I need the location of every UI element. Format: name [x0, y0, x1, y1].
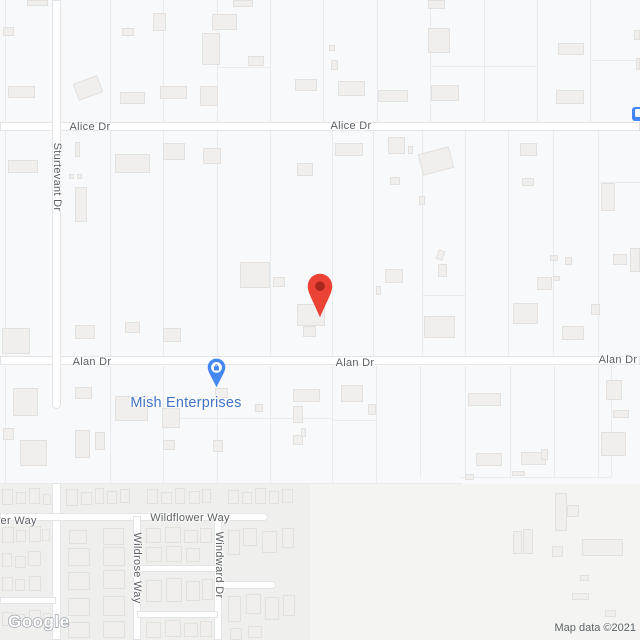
building [29, 526, 41, 542]
building [248, 56, 264, 66]
building [29, 576, 41, 591]
building [103, 547, 125, 566]
parcel-line [430, 66, 537, 67]
building [513, 303, 538, 324]
building [228, 530, 240, 555]
parcel-line [598, 366, 599, 477]
road-lane-south [137, 611, 218, 618]
building [115, 154, 150, 173]
building [269, 491, 279, 504]
building [184, 530, 198, 543]
parcel-line [373, 131, 374, 356]
building [200, 86, 218, 106]
parcel-line [217, 67, 270, 68]
street-label: Alice Dr [331, 120, 372, 132]
building [293, 389, 320, 402]
building [163, 328, 181, 342]
parcel-line [553, 131, 554, 356]
building [555, 493, 567, 531]
building [248, 626, 262, 638]
parcel-line [5, 366, 6, 483]
street-label: Alan Dr [599, 354, 638, 366]
parcel-line [110, 0, 111, 122]
building [550, 255, 558, 261]
building [2, 577, 13, 591]
building [120, 489, 130, 503]
building [613, 254, 627, 265]
parcel-line [598, 131, 599, 356]
building [8, 86, 35, 98]
building [301, 428, 306, 437]
building [246, 594, 261, 614]
parcel-line [110, 131, 111, 356]
building [240, 262, 270, 288]
building [255, 488, 266, 504]
parcel-line [217, 131, 218, 356]
building [2, 527, 14, 543]
parcel-line [376, 366, 377, 483]
building [428, 28, 450, 53]
bus-glyph [635, 109, 640, 117]
building [166, 546, 182, 562]
parcel-line [332, 420, 376, 421]
parcel-line [332, 366, 333, 483]
building [122, 28, 134, 36]
street-label: Sturtevant Dr [51, 143, 63, 212]
building [378, 90, 408, 102]
building [572, 593, 589, 600]
building [68, 598, 90, 616]
building [283, 595, 295, 616]
building [95, 488, 104, 504]
building [75, 325, 95, 339]
parcel-line [5, 131, 6, 356]
parcel-line [590, 0, 591, 122]
building [228, 596, 241, 622]
building [75, 142, 80, 157]
building [73, 75, 104, 101]
building [438, 264, 447, 277]
building [282, 528, 294, 548]
building [27, 0, 48, 6]
building [103, 570, 125, 589]
parcel-line [510, 366, 511, 477]
building [582, 539, 623, 556]
road-lane-north [137, 565, 218, 572]
building [418, 146, 455, 176]
building [465, 474, 474, 480]
building [107, 491, 117, 504]
building [75, 430, 90, 458]
building [565, 257, 572, 265]
google-logo[interactable]: Google [8, 612, 70, 632]
building [541, 449, 548, 460]
building [233, 0, 253, 7]
building [605, 610, 616, 617]
building [189, 491, 200, 504]
map-canvas[interactable]: Alice DrAlice DrSturtevant DrAlan DrAlan… [0, 0, 640, 640]
parcel-line [590, 60, 640, 61]
building [13, 388, 38, 416]
parcel-line [163, 131, 164, 356]
parcel-line [508, 131, 509, 356]
building [293, 406, 303, 423]
building [537, 277, 552, 290]
parcel-line [377, 0, 378, 122]
building [153, 13, 166, 31]
building [42, 529, 50, 541]
building [77, 174, 82, 179]
building [428, 0, 445, 9]
building [368, 404, 376, 415]
building [200, 621, 212, 637]
building [212, 14, 237, 30]
building [146, 622, 161, 638]
building [556, 90, 584, 104]
building [468, 393, 501, 406]
building [3, 27, 14, 36]
building [103, 528, 124, 545]
building [273, 277, 285, 287]
destination-pin-icon[interactable] [307, 273, 333, 323]
road-windward-stub [218, 581, 276, 589]
building [147, 489, 158, 504]
parcel-line [323, 0, 324, 122]
building [335, 143, 363, 156]
building [20, 440, 47, 466]
building [29, 488, 40, 504]
building [303, 326, 316, 337]
building [341, 385, 363, 402]
building [160, 86, 187, 99]
building [265, 597, 279, 620]
parcel-line [163, 418, 332, 419]
building [16, 492, 26, 504]
building [228, 490, 239, 504]
building [120, 92, 145, 104]
building [388, 137, 405, 154]
building [613, 410, 629, 418]
road-lane-west [0, 597, 56, 604]
parcel-line [110, 366, 111, 483]
building [166, 578, 182, 602]
building [424, 316, 455, 338]
building [282, 489, 293, 503]
parcel-line [420, 366, 421, 477]
building [16, 530, 26, 542]
building [163, 143, 185, 160]
parcel-line [465, 131, 466, 356]
building [146, 580, 162, 602]
building [15, 579, 25, 591]
building [146, 528, 161, 543]
building [255, 404, 263, 412]
building [81, 492, 92, 505]
building [376, 286, 381, 295]
building [630, 248, 640, 272]
building [66, 489, 78, 506]
building [125, 322, 140, 333]
building [202, 579, 213, 600]
building [163, 440, 175, 450]
street-label: Windward Dr [213, 532, 225, 599]
building [567, 505, 579, 517]
building [385, 269, 403, 283]
street-label: Wildflower Way [0, 515, 37, 527]
parcel-line [0, 483, 462, 484]
building [8, 160, 38, 173]
parcel-line [270, 366, 271, 483]
building [43, 494, 51, 505]
building [203, 148, 221, 164]
building [103, 621, 125, 638]
parcel-line [422, 295, 465, 296]
building [295, 79, 317, 91]
building [2, 553, 12, 567]
building [419, 196, 425, 205]
building [165, 620, 181, 637]
street-label: Alan Dr [73, 356, 112, 368]
building [202, 33, 220, 65]
building [513, 531, 522, 554]
building [2, 489, 13, 505]
building [390, 177, 400, 185]
building [562, 326, 584, 340]
building [476, 453, 502, 466]
building [580, 575, 589, 581]
building [68, 572, 90, 590]
building [634, 30, 640, 40]
building [262, 531, 277, 553]
building [165, 527, 181, 543]
transit-stop-icon[interactable] [632, 107, 640, 121]
building [75, 187, 87, 222]
building [523, 529, 533, 554]
building [242, 492, 252, 504]
shopping-poi-pin-icon[interactable] [207, 358, 226, 393]
building [522, 178, 534, 186]
building [331, 60, 338, 70]
building [553, 276, 560, 281]
building [213, 440, 223, 452]
building [243, 528, 257, 546]
building [329, 45, 335, 51]
street-label: Wildrose Way [131, 532, 143, 603]
street-label: Alan Dr [336, 357, 375, 369]
street-label: Wildflower Way [150, 512, 230, 524]
building [103, 596, 125, 616]
building [297, 163, 313, 176]
building [2, 328, 30, 354]
parcel-line [460, 477, 611, 478]
building [200, 528, 212, 543]
street-label: Alice Dr [70, 121, 111, 133]
building [69, 530, 87, 544]
building [606, 380, 622, 400]
building [202, 489, 211, 503]
building [146, 547, 162, 562]
parcel-line [484, 0, 485, 122]
parcel-line [554, 366, 555, 477]
building [520, 143, 537, 156]
building [230, 628, 242, 640]
building [591, 304, 600, 315]
building [186, 548, 200, 562]
parcel-line [270, 131, 271, 356]
parcel-line [5, 0, 6, 122]
building [15, 556, 26, 568]
building [75, 387, 92, 399]
parcel-line [537, 0, 538, 122]
building [161, 492, 172, 504]
building [28, 551, 41, 566]
building [68, 548, 90, 566]
building [175, 488, 185, 504]
building [431, 85, 459, 101]
building [552, 546, 563, 557]
building [68, 622, 90, 638]
building [162, 408, 180, 428]
building [636, 58, 640, 70]
building [512, 471, 525, 476]
building [186, 581, 200, 601]
building [69, 174, 74, 179]
building [558, 43, 584, 55]
parcel-line [270, 0, 271, 122]
parcel-line [430, 0, 431, 122]
poi-label-mish-enterprises[interactable]: Mish Enterprises [130, 395, 241, 411]
building [436, 249, 446, 261]
building [601, 183, 615, 211]
building [601, 432, 626, 456]
map-attribution: Map data ©2021 [555, 622, 637, 634]
building [95, 432, 105, 450]
building [338, 81, 365, 96]
building [408, 146, 413, 154]
building [3, 428, 14, 440]
building [184, 623, 198, 637]
parcel-line [465, 366, 466, 477]
